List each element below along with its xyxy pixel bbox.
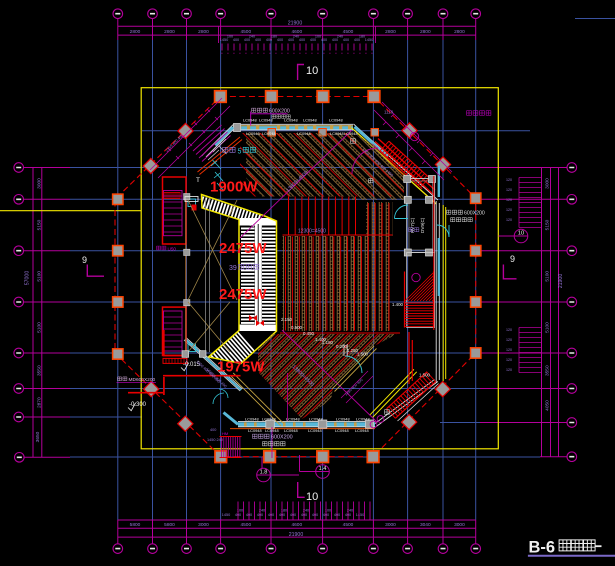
svg-text:3000: 3000 <box>385 522 396 528</box>
svg-text:400: 400 <box>299 38 305 42</box>
svg-text:3000: 3000 <box>454 522 465 528</box>
svg-text:LC0948: LC0948 <box>329 118 343 123</box>
svg-text:2870: 2870 <box>37 397 43 408</box>
svg-text:LC0948: LC0948 <box>335 428 349 433</box>
svg-text:LC0948: LC0948 <box>243 118 257 123</box>
svg-text:21900: 21900 <box>558 274 564 289</box>
svg-text:1900W: 1900W <box>210 179 258 196</box>
svg-text:400: 400 <box>244 38 250 42</box>
svg-text:LC0948: LC0948 <box>284 118 298 123</box>
svg-text:2800: 2800 <box>130 29 141 35</box>
svg-text:240: 240 <box>249 35 255 39</box>
svg-text:400: 400 <box>310 38 316 42</box>
svg-text:3000: 3000 <box>545 178 551 189</box>
svg-text:0.500: 0.500 <box>291 325 303 330</box>
svg-text:57000: 57000 <box>25 271 31 286</box>
svg-text:LC0948: LC0948 <box>245 417 259 422</box>
svg-text:120: 120 <box>506 188 512 192</box>
svg-text:0.200: 0.200 <box>336 344 348 349</box>
svg-text:2800: 2800 <box>420 29 431 35</box>
svg-text:U50: U50 <box>168 247 177 252</box>
svg-text:2800: 2800 <box>164 29 175 35</box>
svg-text:1450: 1450 <box>222 513 230 517</box>
svg-text:LC0948: LC0948 <box>297 131 311 136</box>
svg-text:400: 400 <box>266 38 272 42</box>
svg-text:1.400: 1.400 <box>315 337 327 342</box>
svg-text:LC0948: LC0948 <box>259 118 273 123</box>
svg-text:LC0948: LC0948 <box>248 428 262 433</box>
svg-text:400: 400 <box>354 38 360 42</box>
svg-text:400: 400 <box>277 38 283 42</box>
svg-text:10: 10 <box>306 491 318 503</box>
svg-text:4500: 4500 <box>240 522 251 528</box>
svg-text:9: 9 <box>510 254 515 264</box>
svg-text:5800: 5800 <box>164 522 175 528</box>
svg-text:2.150: 2.150 <box>281 317 293 322</box>
svg-text:10: 10 <box>306 65 318 77</box>
svg-text:120: 120 <box>506 338 512 342</box>
svg-text:240: 240 <box>337 35 343 39</box>
svg-text:LC0948: LC0948 <box>303 118 317 123</box>
svg-text:3550: 3550 <box>37 365 43 376</box>
svg-text:400: 400 <box>210 428 216 432</box>
svg-text:4500: 4500 <box>343 522 354 528</box>
svg-text:3650: 3650 <box>35 431 41 442</box>
svg-text:LC0948: LC0948 <box>246 131 260 136</box>
svg-text:-0.300: -0.300 <box>129 402 147 408</box>
svg-text:B-6: B-6 <box>529 538 556 556</box>
svg-text:120: 120 <box>506 218 512 222</box>
svg-text:120: 120 <box>506 198 512 202</box>
svg-text:5100: 5100 <box>37 322 43 333</box>
svg-text:3550: 3550 <box>545 365 551 376</box>
svg-text:600X200: 600X200 <box>271 435 293 441</box>
svg-text:LC0948: LC0948 <box>262 417 276 422</box>
svg-text:1.8: 1.8 <box>260 470 268 476</box>
svg-text:12300=4500: 12300=4500 <box>298 229 326 235</box>
svg-text:240: 240 <box>293 35 299 39</box>
svg-text:3040: 3040 <box>420 522 431 528</box>
svg-text:21900: 21900 <box>289 532 304 538</box>
svg-text:LC0948: LC0948 <box>309 417 323 422</box>
svg-text:5100: 5100 <box>545 322 551 333</box>
svg-text:120: 120 <box>506 348 512 352</box>
svg-text:5150: 5150 <box>37 219 43 230</box>
svg-text:2800: 2800 <box>198 29 209 35</box>
svg-text:400: 400 <box>255 38 261 42</box>
svg-text:10: 10 <box>518 231 524 237</box>
svg-text:1118: 1118 <box>384 110 394 115</box>
svg-text:LC0948: LC0948 <box>356 417 370 422</box>
svg-text:LC0948: LC0948 <box>286 417 300 422</box>
svg-text:2800: 2800 <box>385 29 396 35</box>
svg-text:1.4: 1.4 <box>319 466 327 472</box>
svg-text:39: 39 <box>229 265 237 272</box>
svg-text:LC0948: LC0948 <box>262 131 276 136</box>
svg-text:5150: 5150 <box>545 219 551 230</box>
svg-text:21900: 21900 <box>288 21 303 27</box>
svg-text:LC0948: LC0948 <box>284 428 298 433</box>
svg-text:4500: 4500 <box>343 29 354 35</box>
svg-text:120: 120 <box>506 328 512 332</box>
svg-text:100: 100 <box>227 35 233 39</box>
svg-text:DV9(C): DV9(C) <box>420 217 425 233</box>
svg-text:180: 180 <box>271 35 277 39</box>
svg-text:0.450: 0.450 <box>303 331 315 336</box>
svg-text:LC0948: LC0948 <box>344 131 358 136</box>
svg-text:LC0948: LC0948 <box>265 428 279 433</box>
svg-text:5100: 5100 <box>37 271 43 282</box>
svg-text:LC0948: LC0948 <box>308 428 322 433</box>
svg-text:5800: 5800 <box>130 522 141 528</box>
svg-text:5100: 5100 <box>545 271 551 282</box>
svg-text:400: 400 <box>288 38 294 42</box>
svg-text:120: 120 <box>506 368 512 372</box>
svg-text:2475W: 2475W <box>219 240 267 257</box>
svg-text:120: 120 <box>506 208 512 212</box>
svg-text:2800: 2800 <box>454 29 465 35</box>
svg-text:LC0948: LC0948 <box>330 131 344 136</box>
svg-text:1.500: 1.500 <box>419 373 431 378</box>
svg-text:2475W: 2475W <box>219 286 267 303</box>
svg-text:120: 120 <box>506 178 512 182</box>
svg-text:400: 400 <box>321 38 327 42</box>
svg-text:1450 240: 1450 240 <box>207 438 223 442</box>
svg-text:LC0948: LC0948 <box>355 428 369 433</box>
svg-text:1450: 1450 <box>356 513 364 517</box>
svg-text:3000: 3000 <box>198 522 209 528</box>
svg-text:4600: 4600 <box>291 522 302 528</box>
svg-text:400: 400 <box>343 38 349 42</box>
svg-text:100: 100 <box>315 35 321 39</box>
svg-text:9: 9 <box>82 255 87 265</box>
svg-text:LC0948: LC0948 <box>336 417 350 422</box>
svg-text:5: 5 <box>238 149 242 156</box>
svg-text:1450: 1450 <box>365 38 373 42</box>
svg-text:1.500: 1.500 <box>357 352 369 357</box>
svg-text:180: 180 <box>359 35 365 39</box>
svg-text:1450: 1450 <box>220 38 228 42</box>
svg-text:120: 120 <box>506 358 512 362</box>
svg-text:1.400: 1.400 <box>392 302 404 307</box>
svg-text:600X200: 600X200 <box>464 211 485 217</box>
svg-text:T: T <box>196 177 200 184</box>
svg-text:3000: 3000 <box>37 178 43 189</box>
svg-text:HM: HM <box>222 431 228 436</box>
svg-text:4050: 4050 <box>545 400 551 411</box>
svg-text:400: 400 <box>332 38 338 42</box>
svg-text:1975W: 1975W <box>217 359 265 376</box>
svg-text:400: 400 <box>233 38 239 42</box>
